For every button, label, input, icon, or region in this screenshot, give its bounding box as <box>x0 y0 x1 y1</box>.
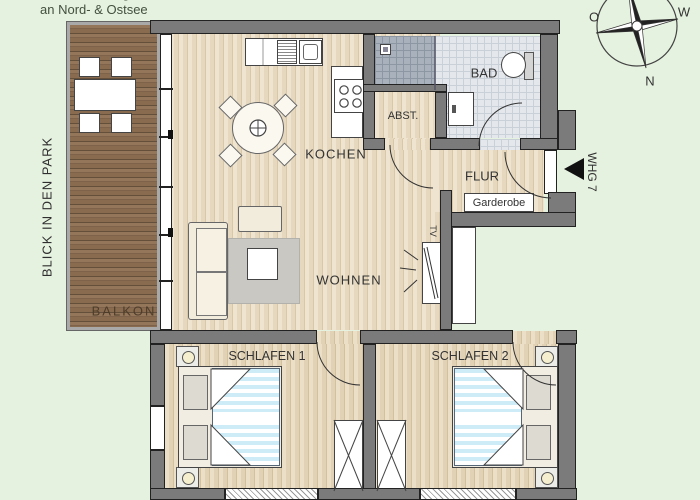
compass-west-label: W <box>678 5 690 20</box>
wall-bedroom-divider <box>363 344 376 500</box>
sofa <box>188 222 228 320</box>
wall-bottom-a <box>150 488 225 500</box>
duvet-gap <box>455 412 521 422</box>
duvet-gap <box>213 412 279 422</box>
bedroom2-door-threshold <box>513 331 556 344</box>
lamp-icon <box>182 472 195 485</box>
balcony-chair <box>79 113 100 133</box>
bedroom2-label: SCHLAFEN 2 <box>431 349 508 363</box>
wall-bath-right <box>540 34 558 150</box>
storage-door-threshold <box>385 139 430 150</box>
compass-north-label: N <box>645 74 654 89</box>
window-mullion <box>159 88 173 90</box>
wall-bedroom2-right <box>558 344 576 500</box>
stove <box>334 79 365 113</box>
wall-storage-bottom-b <box>430 138 480 150</box>
balcony-table <box>74 79 136 111</box>
balcony-label: BALKON <box>92 304 157 319</box>
balcony-window-wall <box>160 34 172 330</box>
floor-plan: Ferienwohnungen an Nord- & Ostsee O W N … <box>0 0 700 500</box>
balcony-door-handle <box>168 130 173 139</box>
balcony-door-handle <box>168 228 173 237</box>
entrance-door-leaf <box>544 150 557 194</box>
wall-bath-bottom <box>520 138 558 150</box>
sink-basin <box>303 44 318 60</box>
wall-hall-bottom <box>440 212 576 227</box>
bedroom1-label: SCHLAFEN 1 <box>228 349 305 363</box>
tv-label: TV <box>428 225 438 237</box>
wall-storage-bath <box>435 92 447 138</box>
wall-top <box>150 20 560 34</box>
washing-machine <box>448 92 474 126</box>
park-view-label: BLICK IN DEN PARK <box>40 137 55 277</box>
lamp-icon <box>541 351 554 364</box>
dishwasher <box>277 40 297 64</box>
pillow <box>183 425 208 460</box>
balcony-chair <box>79 57 100 77</box>
tv-sideboard <box>422 242 442 304</box>
shower-drain <box>380 44 391 55</box>
coffee-table <box>247 248 278 280</box>
wall-shower-storage <box>363 84 447 92</box>
bath-label: BAD <box>471 66 498 81</box>
wall-bedroom1-left-a <box>150 344 165 406</box>
bottom-window <box>420 488 516 500</box>
pillow <box>183 375 208 410</box>
hall-label: FLUR <box>465 169 499 184</box>
bedroom1-window <box>150 406 165 450</box>
bath-door-threshold <box>480 139 520 150</box>
wall-living-hall <box>440 190 452 330</box>
garderobe-label: Garderobe <box>473 197 526 209</box>
armchair <box>238 206 282 232</box>
header-line2: an Nord- & Ostsee <box>40 2 148 18</box>
balcony-chair <box>111 57 132 77</box>
storage-label: ABST. <box>388 110 419 122</box>
hall-closet <box>452 227 476 324</box>
compass-east-label: O <box>589 10 599 25</box>
wall-corridor-c <box>556 330 577 344</box>
lamp-icon <box>182 351 195 364</box>
wall-entrance-step <box>558 110 576 150</box>
bottom-window <box>225 488 318 500</box>
living-label: WOHNEN <box>316 273 381 288</box>
toilet-bowl <box>501 52 526 78</box>
entrance-arrow-icon <box>564 158 584 180</box>
window-mullion <box>159 280 173 282</box>
wardrobe <box>377 420 406 491</box>
kitchen-label: KOCHEN <box>305 147 367 162</box>
wall-corridor-a <box>150 330 317 344</box>
apartment-number-label: WHG 7 <box>585 152 599 191</box>
lamp-icon <box>541 472 554 485</box>
pillow <box>526 425 551 460</box>
wall-bottom-c <box>516 488 577 500</box>
wall-corridor-b <box>360 330 513 344</box>
bedroom1-door-threshold <box>317 331 360 344</box>
window-mullion <box>159 186 173 188</box>
wardrobe <box>334 420 363 491</box>
wall-bottom-b <box>318 488 420 500</box>
balcony-chair <box>111 113 132 133</box>
pillow <box>526 375 551 410</box>
